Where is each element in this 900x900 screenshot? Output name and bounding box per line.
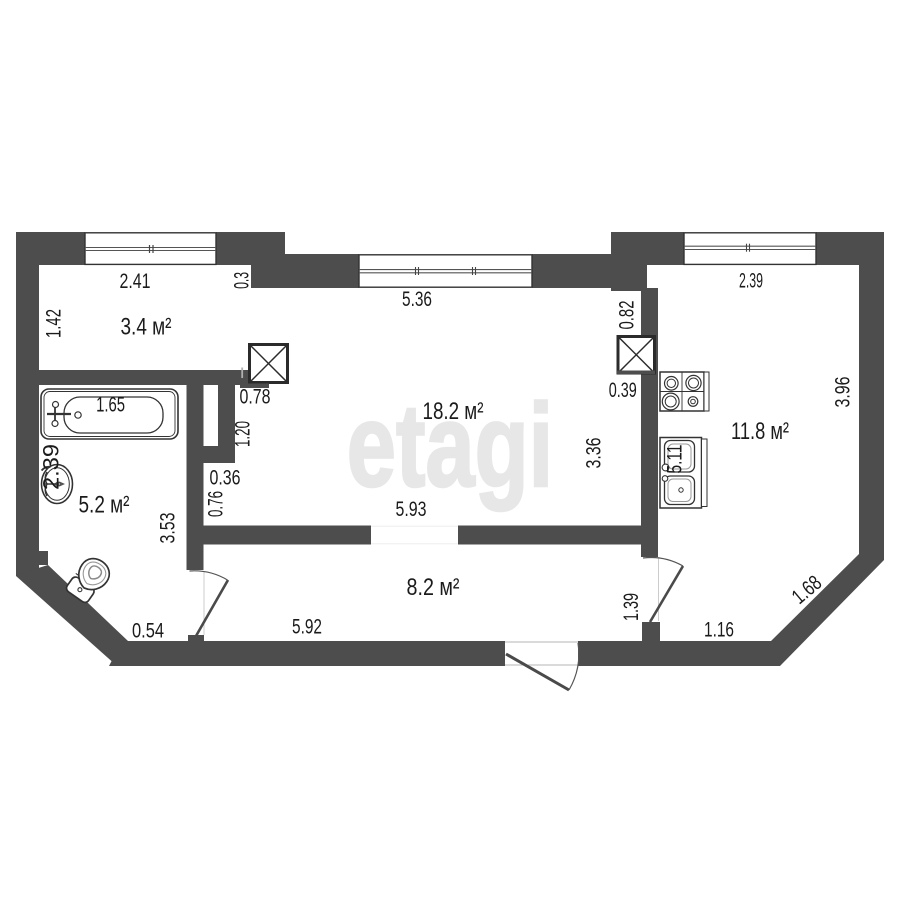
svg-text:3.4 м²: 3.4 м²: [121, 314, 172, 341]
svg-text:8.2 м²: 8.2 м²: [407, 574, 460, 601]
svg-text:3.36: 3.36: [583, 438, 606, 469]
svg-text:0.54: 0.54: [132, 620, 164, 643]
svg-text:5.2 м²: 5.2 м²: [79, 492, 130, 519]
svg-text:1.20: 1.20: [232, 421, 255, 447]
svg-text:0.39: 0.39: [609, 379, 637, 402]
svg-text:0.82: 0.82: [616, 301, 639, 330]
svg-text:2.41: 2.41: [120, 270, 151, 293]
svg-text:1.16: 1.16: [704, 619, 734, 642]
svg-text:0.36: 0.36: [210, 467, 241, 490]
svg-text:3.96: 3.96: [832, 377, 855, 408]
svg-text:2.39: 2.39: [39, 444, 64, 490]
svg-text:3.53: 3.53: [157, 513, 180, 544]
svg-text:1.39: 1.39: [620, 593, 643, 621]
svg-text:2.39: 2.39: [739, 270, 763, 293]
svg-text:11.8 м²: 11.8 м²: [731, 418, 789, 445]
svg-text:5.93: 5.93: [396, 498, 427, 521]
svg-text:1.65: 1.65: [96, 394, 125, 417]
svg-text:0.3: 0.3: [231, 272, 254, 289]
svg-text:0.76: 0.76: [205, 491, 228, 517]
svg-text:5.92: 5.92: [292, 616, 322, 639]
svg-text:18.2 м²: 18.2 м²: [423, 398, 484, 425]
svg-text:0.78: 0.78: [240, 386, 271, 409]
svg-text:5.36: 5.36: [402, 288, 432, 311]
svg-text:5.11: 5.11: [664, 445, 687, 474]
svg-text:1.42: 1.42: [43, 309, 66, 338]
